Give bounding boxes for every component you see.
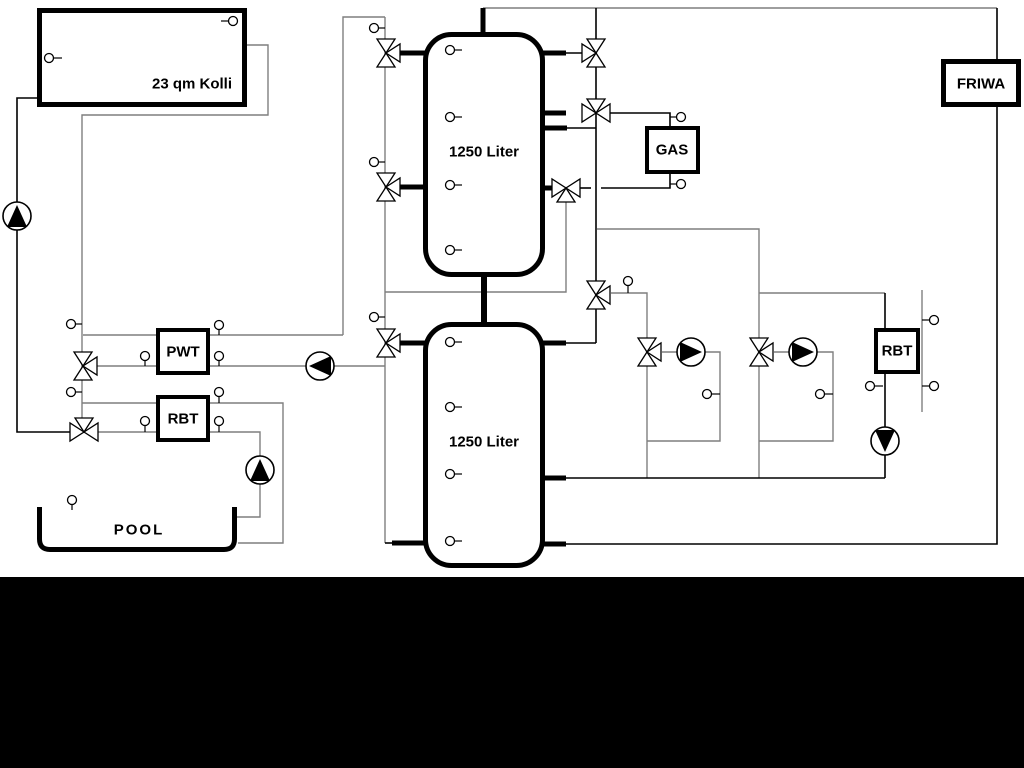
temp-sensor-icon bbox=[215, 388, 224, 404]
temp-sensor-icon bbox=[370, 24, 386, 33]
temp-sensor-icon bbox=[67, 388, 83, 397]
schematic-page: 23 qm Kolli 1250 Liter 1250 Liter PWT RB… bbox=[0, 0, 1024, 768]
tank1-top-right-valve-icon bbox=[582, 39, 605, 67]
solar-pump-icon bbox=[3, 202, 31, 230]
pool-pump-icon bbox=[246, 456, 274, 484]
gas-return-valve-icon bbox=[552, 179, 580, 202]
pwt-label: PWT bbox=[166, 344, 199, 361]
temp-sensor-icon bbox=[141, 417, 150, 433]
tank-upper-label: 1250 Liter bbox=[449, 144, 519, 161]
temp-sensor-icon bbox=[922, 382, 939, 391]
pool-label: POOL bbox=[114, 522, 165, 539]
temp-sensor-icon bbox=[67, 320, 83, 329]
friwa-label: FRIWA bbox=[957, 76, 1005, 93]
temp-sensor-icon bbox=[141, 352, 150, 367]
temp-sensor-icon bbox=[703, 390, 721, 399]
temp-sensor-icon bbox=[816, 390, 834, 399]
temp-sensor-icon bbox=[215, 417, 224, 433]
temp-sensor-icon bbox=[68, 496, 77, 511]
temp-sensor-icon bbox=[215, 321, 224, 336]
temp-sensor-icon bbox=[866, 382, 884, 391]
temp-sensor-icon bbox=[922, 316, 939, 325]
temp-sensor-icon bbox=[670, 180, 686, 189]
tank-lower-label: 1250 Liter bbox=[449, 434, 519, 451]
temp-sensor-icon bbox=[215, 352, 224, 367]
solar-rbt-valve-icon bbox=[70, 418, 98, 441]
circuit-riser-valve-icon bbox=[587, 281, 610, 309]
temp-sensor-icon bbox=[624, 277, 633, 294]
pwt-secondary-pump-icon bbox=[306, 352, 334, 380]
solar-pwt-valve-icon bbox=[74, 352, 97, 380]
collector-label: 23 qm Kolli bbox=[152, 76, 232, 93]
rbt-right-pump-icon bbox=[871, 427, 899, 455]
circuit1-mixing-valve-icon bbox=[638, 338, 661, 366]
bottom-black-mask bbox=[0, 577, 1024, 768]
heating-circuit-1-pump-icon bbox=[677, 338, 705, 366]
temp-sensor-icon bbox=[370, 313, 386, 322]
tank2-left-valve-icon bbox=[377, 329, 400, 357]
circuit2-mixing-valve-icon bbox=[750, 338, 773, 366]
gas-label: GAS bbox=[656, 142, 689, 159]
tank1-left-lower-valve-icon bbox=[377, 173, 400, 201]
tank1-left-upper-valve-icon bbox=[377, 39, 400, 67]
temp-sensor-icon bbox=[670, 113, 686, 122]
temp-sensor-icon bbox=[370, 158, 386, 167]
rbt-left-label: RBT bbox=[168, 411, 199, 428]
rbt-right-label: RBT bbox=[882, 343, 913, 360]
heating-circuit-2-pump-icon bbox=[789, 338, 817, 366]
